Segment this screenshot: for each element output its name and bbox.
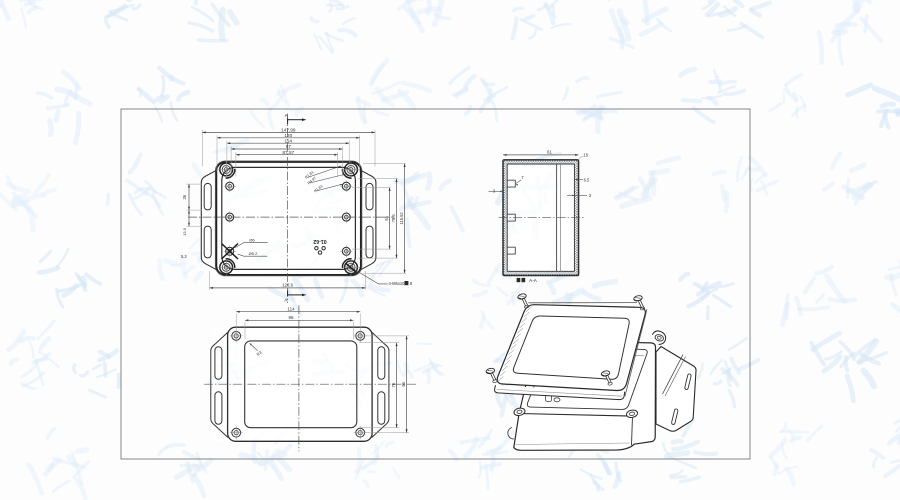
svg-text:147.99: 147.99 [281,128,296,133]
svg-text:79.5: 79.5 [391,214,396,223]
svg-text:97: 97 [286,144,292,149]
svg-text:01-62: 01-62 [313,238,326,244]
svg-text:6.5: 6.5 [584,177,590,182]
svg-text:Ø6: Ø6 [249,237,255,242]
svg-text:A-A: A-A [529,278,538,283]
svg-text:87.57: 87.57 [282,150,294,155]
svg-text:114: 114 [285,138,293,143]
svg-text:65: 65 [384,215,389,220]
svg-text:4-M6x10: 4-M6x10 [389,281,406,286]
svg-text:61: 61 [547,150,552,155]
svg-text:36: 36 [182,194,187,199]
svg-text:15: 15 [584,153,589,158]
svg-text:13.5: 13.5 [182,227,187,236]
svg-text:114: 114 [287,307,295,312]
svg-text:128.6: 128.6 [282,282,293,287]
svg-text:96: 96 [401,381,406,386]
svg-text:5.3: 5.3 [181,254,187,259]
svg-text:Ø5.2: Ø5.2 [249,251,258,256]
svg-text:96: 96 [288,315,294,320]
svg-text:115.52: 115.52 [399,212,404,225]
svg-text:76: 76 [391,382,396,387]
svg-text:120: 120 [284,133,292,138]
